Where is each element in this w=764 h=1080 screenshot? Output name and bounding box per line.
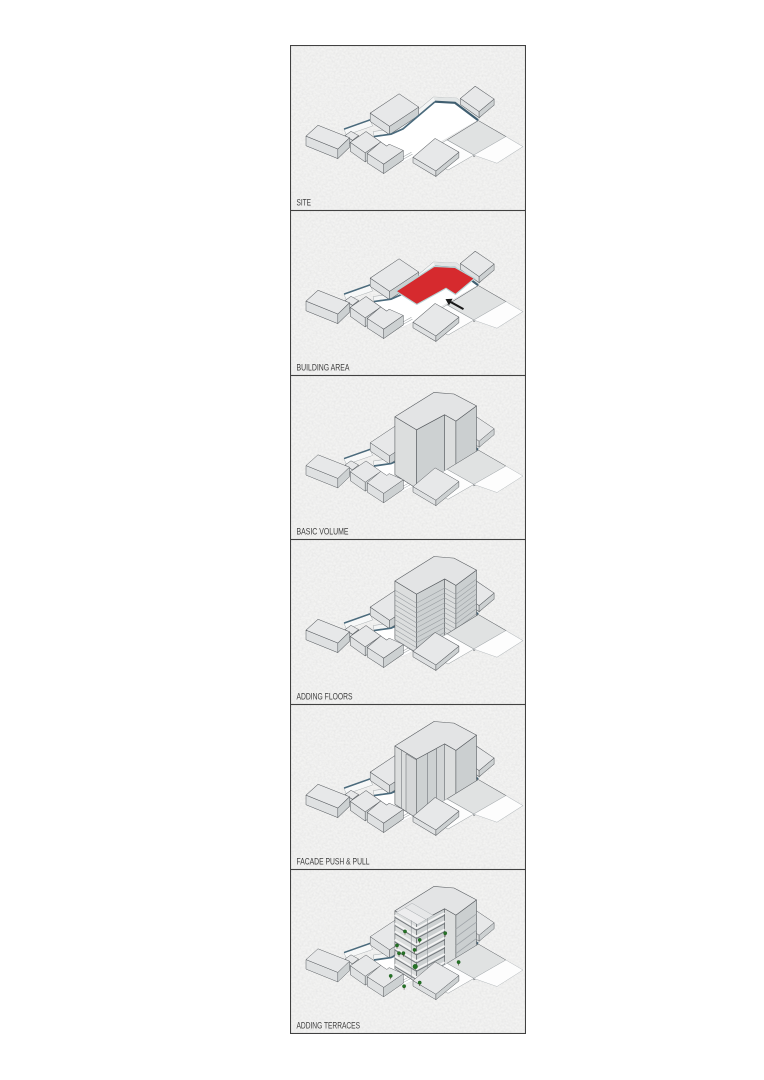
svg-text:BASIC VOLUME: BASIC VOLUME [297,526,349,536]
svg-text:FACADE PUSH & PULL: FACADE PUSH & PULL [297,856,370,866]
svg-text:BUILDING AREA: BUILDING AREA [297,362,350,372]
svg-text:ADDING TERRACES: ADDING TERRACES [297,1020,361,1030]
svg-text:SITE: SITE [297,197,312,207]
svg-text:ADDING FLOORS: ADDING FLOORS [297,691,353,701]
